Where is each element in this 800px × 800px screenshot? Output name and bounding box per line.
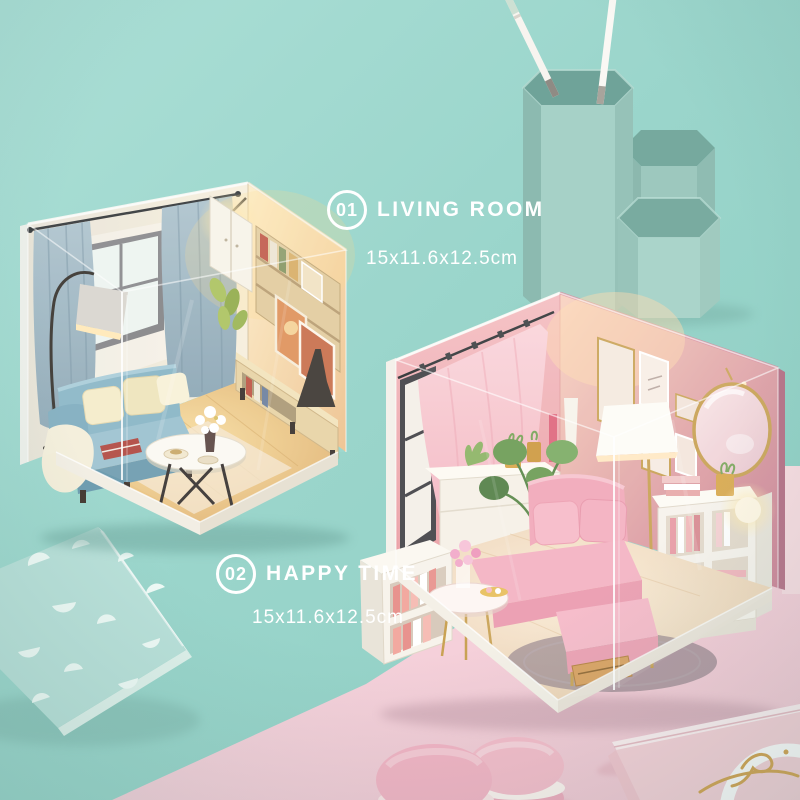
product-label-living-room: 01 LIVING ROOM bbox=[327, 190, 545, 230]
product-dimensions: 15x11.6x12.5cm bbox=[252, 607, 404, 629]
vignette bbox=[0, 0, 800, 800]
product-number-badge: 01 bbox=[327, 190, 367, 230]
product-photo-scene: 01 LIVING ROOM 15x11.6x12.5cm 02 HAPPY T… bbox=[0, 0, 800, 800]
product-number-badge: 02 bbox=[216, 554, 256, 594]
scene-graphics bbox=[0, 0, 800, 800]
product-label-happy-time: 02 HAPPY TIME bbox=[216, 554, 418, 594]
product-title: HAPPY TIME bbox=[266, 562, 418, 586]
product-title: LIVING ROOM bbox=[377, 198, 545, 222]
product-dimensions: 15x11.6x12.5cm bbox=[366, 248, 518, 270]
